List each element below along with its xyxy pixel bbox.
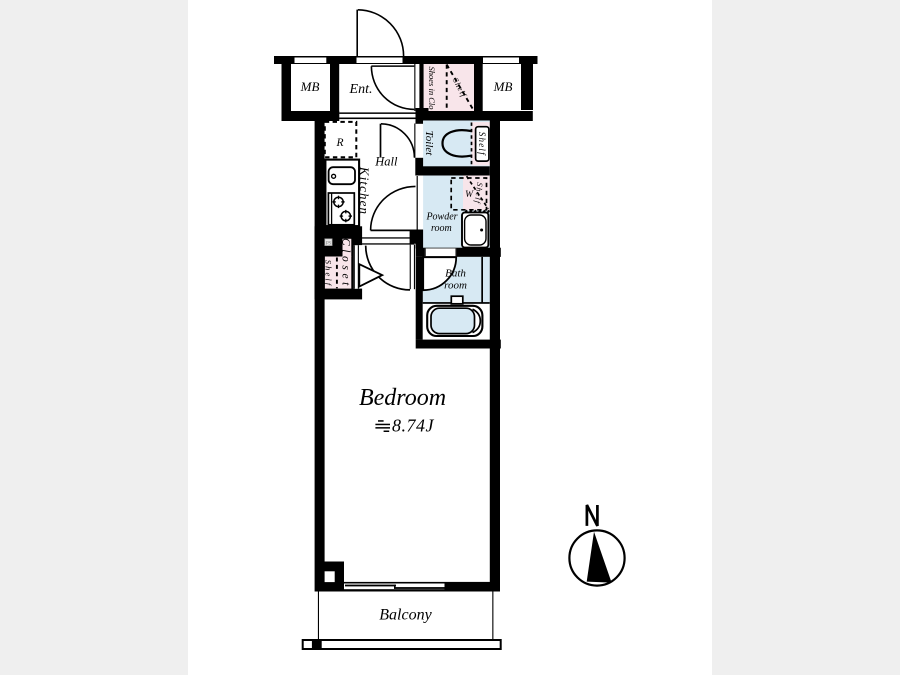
svg-text:MB: MB (493, 79, 513, 94)
svg-text:Bedroom: Bedroom (359, 385, 446, 411)
svg-text:Bath: Bath (445, 267, 466, 279)
svg-text:Balcony: Balcony (379, 607, 432, 624)
svg-text:Hall: Hall (374, 154, 398, 168)
svg-text:8.74J: 8.74J (392, 416, 435, 436)
svg-text:Powder: Powder (425, 212, 457, 223)
svg-text:W: W (465, 190, 474, 200)
svg-text:R: R (335, 137, 343, 149)
svg-text:Shoes in Clo: Shoes in Clo (427, 67, 437, 110)
svg-text:Shelf: Shelf (323, 260, 333, 288)
svg-text:room: room (444, 280, 467, 292)
svg-text:Toilet: Toilet (423, 131, 435, 157)
svg-text:Closet: Closet (339, 238, 351, 289)
svg-text:Kitchen: Kitchen (357, 166, 372, 215)
svg-text:PS: PS (325, 241, 332, 246)
svg-text:MB: MB (300, 79, 320, 94)
svg-text:room: room (431, 223, 452, 234)
svg-text:Shelf: Shelf (477, 132, 487, 156)
svg-text:Ent.: Ent. (349, 82, 373, 97)
